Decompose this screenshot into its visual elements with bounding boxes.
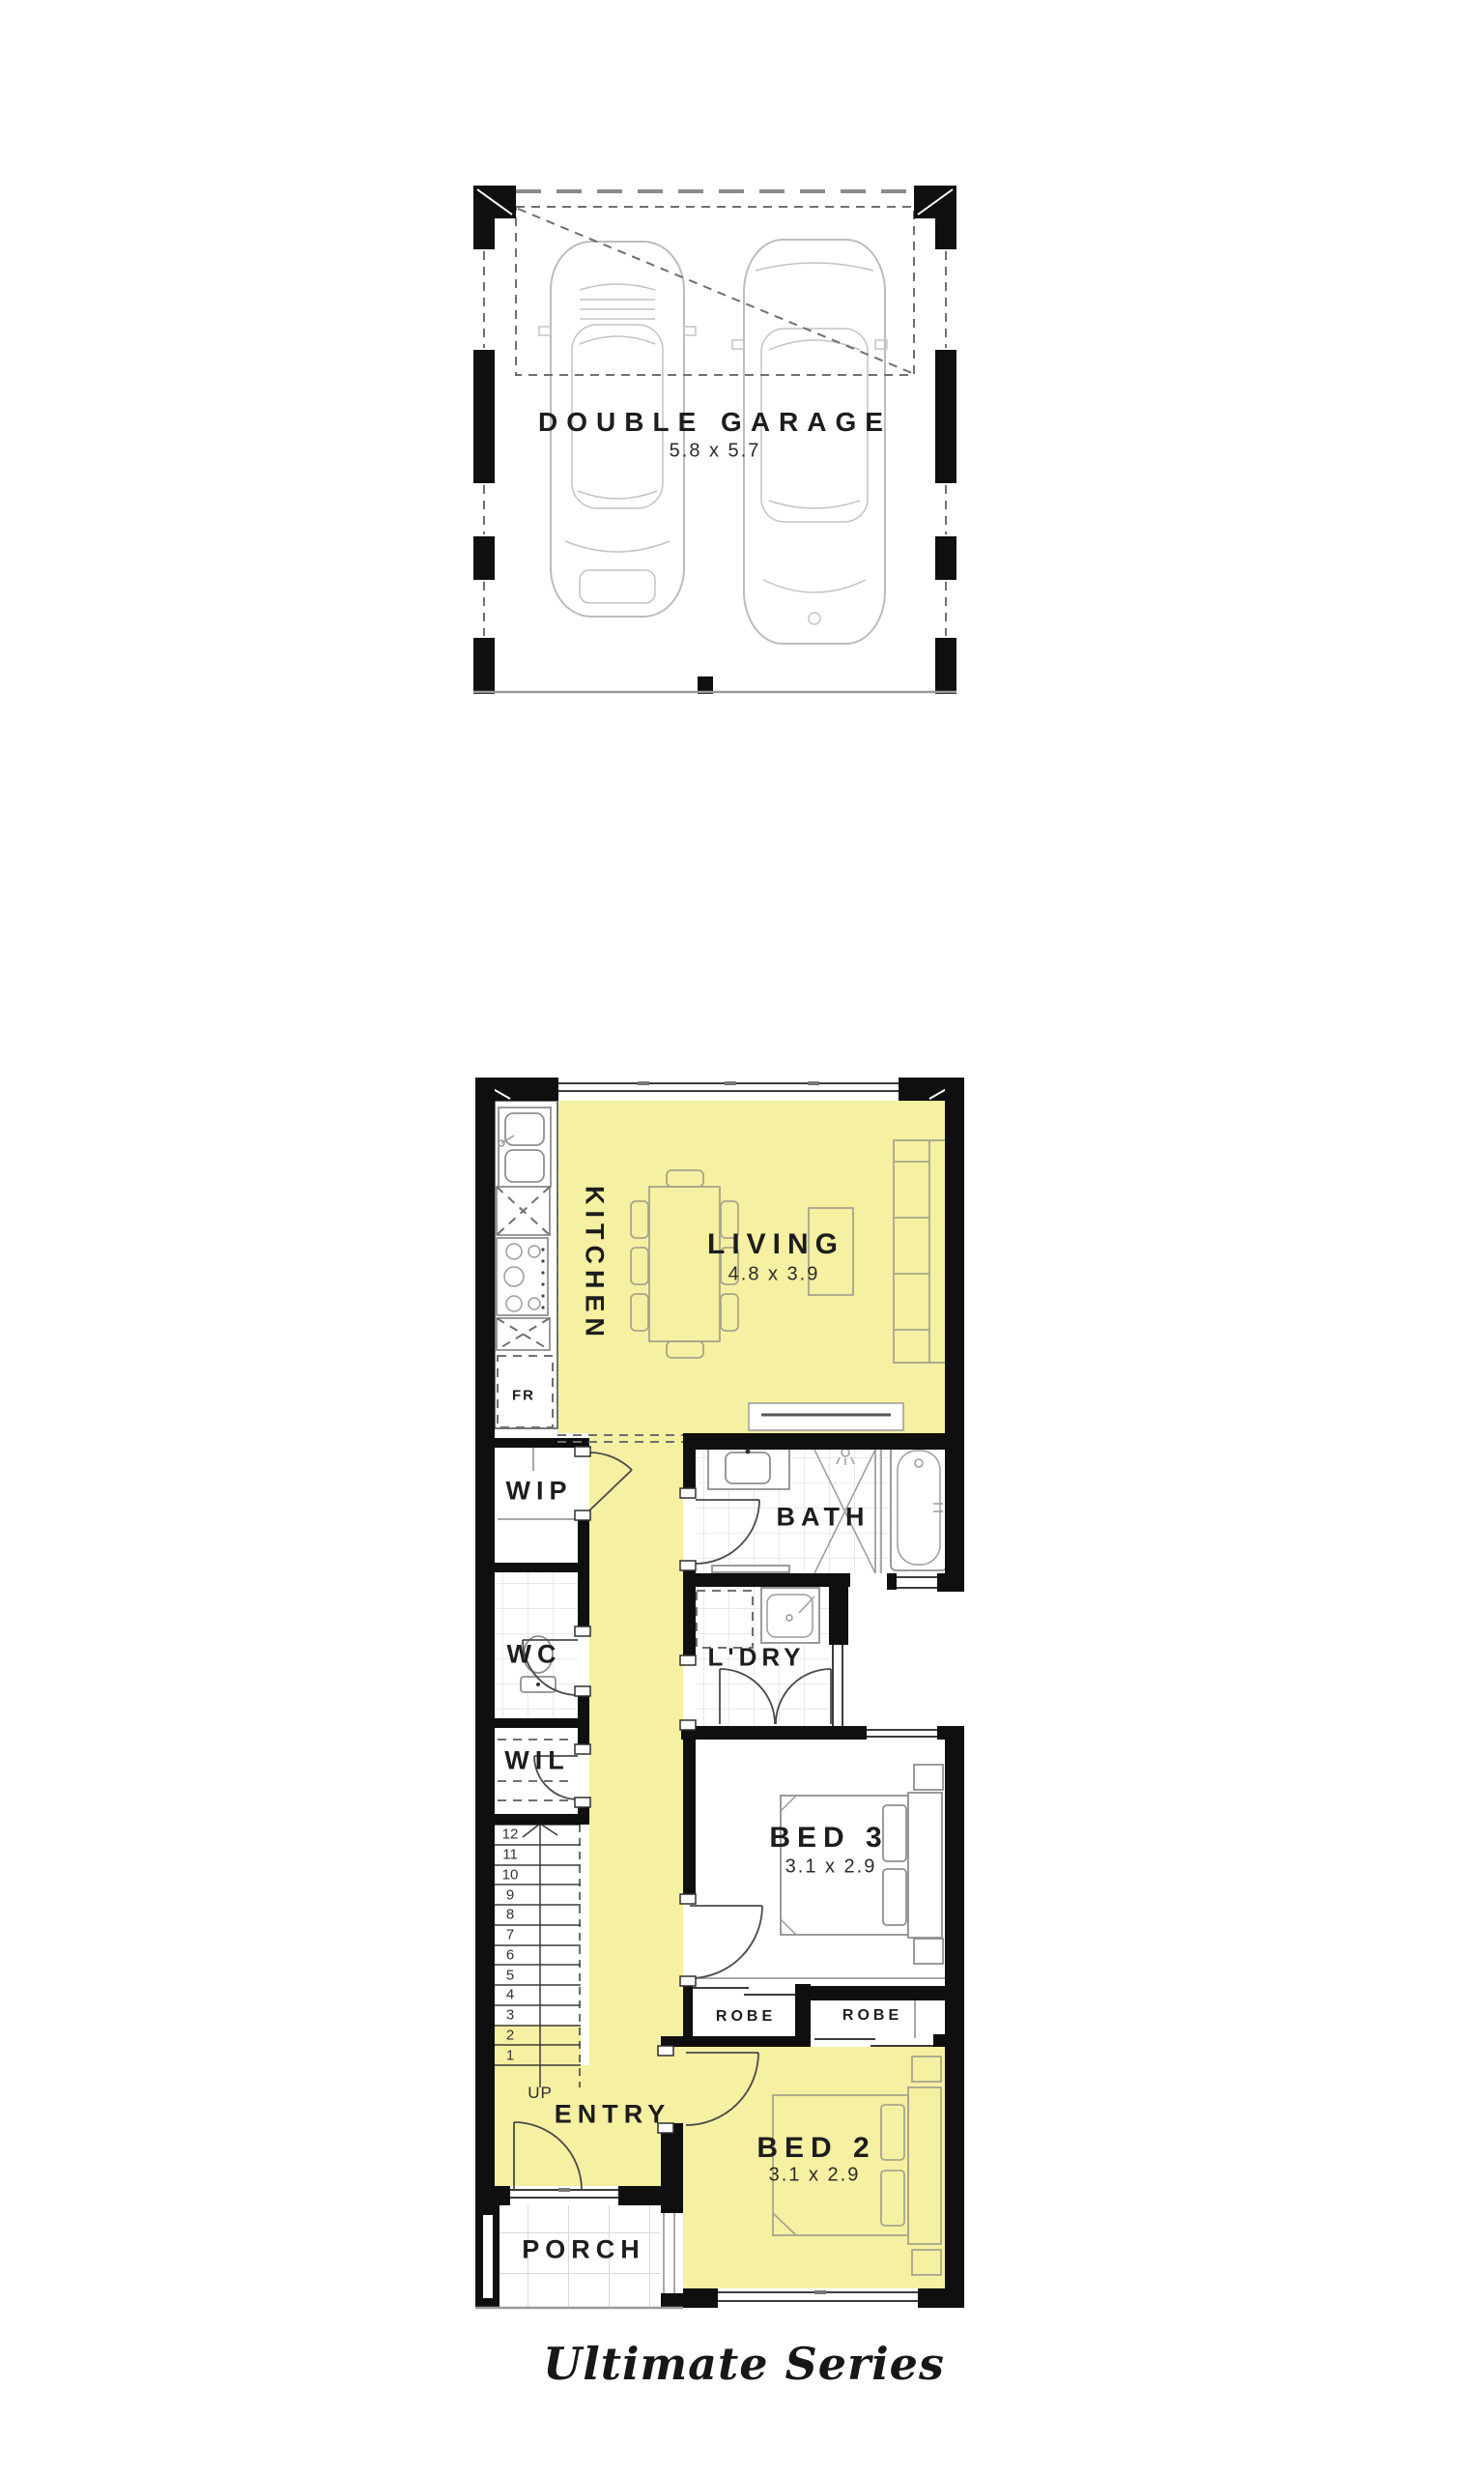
floor-plan-graphics — [475, 1078, 964, 2308]
robe-left-label: ROBE — [716, 2008, 776, 2026]
garage-room-label: DOUBLE GARAGE — [538, 407, 892, 438]
stair-tread-number: 8 — [506, 1907, 514, 1923]
stair-tread-number: 9 — [506, 1887, 514, 1904]
stair-tread-number: 1 — [506, 2048, 514, 2064]
stair-tread-number: 5 — [506, 1968, 514, 1984]
stair-tread-number: 2 — [506, 2028, 514, 2044]
bed2-label: BED 2 — [756, 2132, 875, 2165]
fridge-label: FR — [512, 1388, 535, 1404]
bed3-label: BED 3 — [769, 1822, 888, 1855]
stairs-up-label: UP — [528, 2084, 553, 2103]
kitchen-bench — [495, 1101, 557, 1428]
stair-tread-number: 3 — [506, 2007, 514, 2024]
kitchen-label: KITCHEN — [580, 1186, 610, 1342]
living-dims-label: 4.8 x 3.9 — [728, 1264, 820, 1286]
laundry-label: L'DRY — [708, 1643, 806, 1673]
living-label: LIVING — [707, 1228, 844, 1261]
garage-dims-label: 5.8 x 5.7 — [670, 441, 761, 463]
floorplan-page: DOUBLE GARAGE 5.8 x 5.7 KITCHEN LIVING 4… — [0, 0, 1484, 2474]
bed2-dims-label: 3.1 x 2.9 — [769, 2165, 861, 2187]
wip-label: WIP — [506, 1477, 573, 1507]
stair-tread-number: 10 — [502, 1867, 519, 1884]
bed3-dims-label: 3.1 x 2.9 — [785, 1856, 877, 1879]
entry-label: ENTRY — [555, 2100, 671, 2130]
wc-label: WC — [507, 1640, 562, 1670]
stair-tread-number: 6 — [506, 1947, 514, 1964]
stair-tread-number: 12 — [502, 1827, 519, 1843]
stair-tread-number: 4 — [506, 1987, 514, 2003]
stair-tread-number: 11 — [502, 1847, 518, 1863]
stair-tread-number: 7 — [506, 1927, 514, 1943]
robe-right-label: ROBE — [842, 2007, 902, 2025]
wil-label: WIL — [504, 1746, 569, 1776]
series-branding: Ultimate Series — [543, 2338, 945, 2390]
porch-label: PORCH — [522, 2235, 645, 2265]
bath-label: BATH — [777, 1503, 870, 1533]
